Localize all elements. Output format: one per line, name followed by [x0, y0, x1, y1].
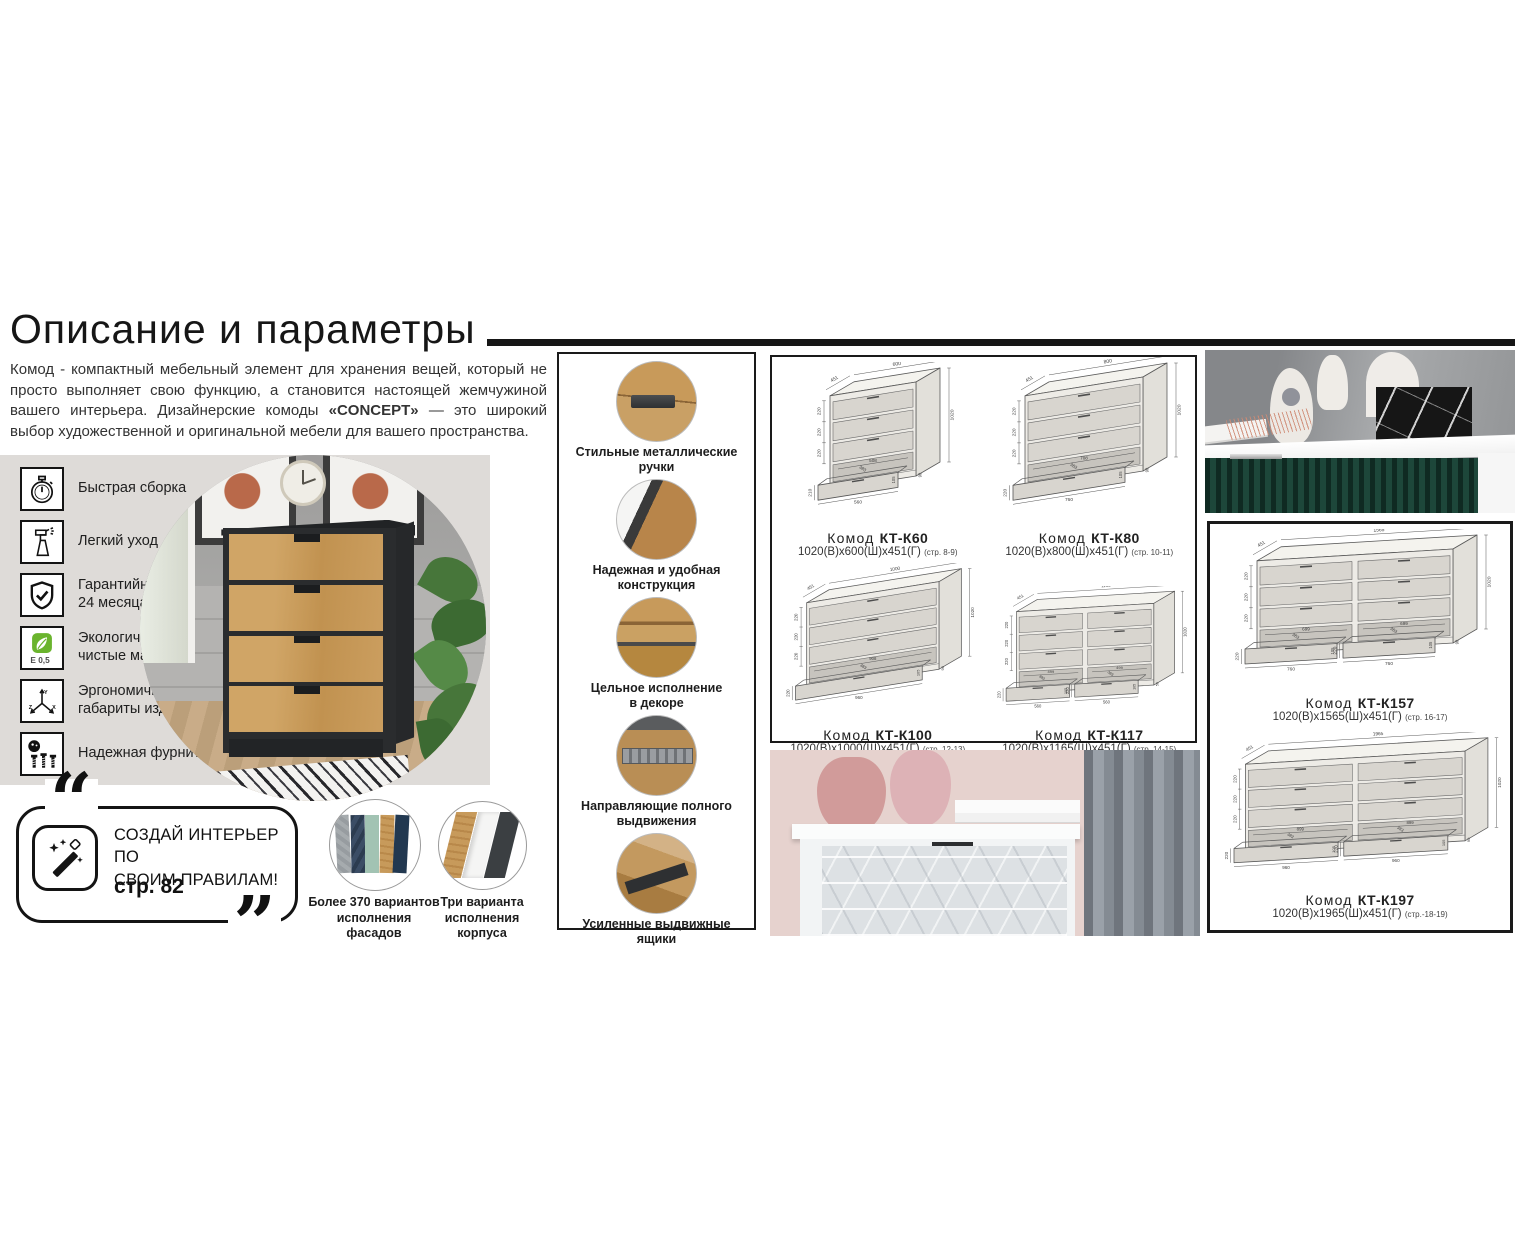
model-cell-кт-к157: 6992207603831056992207603831052202202201…: [1223, 529, 1497, 728]
hex-pattern-front: [822, 846, 1067, 936]
model-type-label: Комод: [1305, 892, 1352, 908]
svg-text:1165: 1165: [1101, 586, 1111, 588]
body-variants-photo: [438, 801, 527, 890]
detail-caption: Усиленные выдвижные ящики: [582, 917, 730, 947]
model-dimensions: 1020(В)x800(Ш)x451(Г) (стр. 10-11): [1005, 546, 1173, 558]
drawer-handle: [1230, 454, 1283, 459]
model-cell-кт-к60: 508210560383105220220220600451102090Комо…: [772, 357, 984, 563]
svg-text:1020: 1020: [1497, 777, 1503, 788]
svg-text:220: 220: [1235, 652, 1241, 660]
models-column: 6992207603831056992207603831052202202201…: [1207, 521, 1513, 933]
model-page-ref: (стр. 16-17): [1405, 713, 1447, 722]
dresser-top: [792, 824, 1080, 839]
svg-text:499: 499: [1116, 664, 1123, 669]
svg-text:220: 220: [1232, 775, 1237, 783]
svg-text:220: 220: [786, 689, 791, 697]
svg-text:220: 220: [1232, 815, 1237, 823]
svg-text:X: X: [52, 705, 56, 711]
detail-item: Направляющие полного выдвижения: [581, 715, 732, 829]
model-caption: Комод КТ-К80: [1039, 530, 1140, 546]
detail-item: Цельное исполнение в декоре: [591, 597, 723, 711]
books: [955, 800, 1080, 813]
svg-text:560: 560: [854, 499, 862, 505]
dresser-drawer: [229, 636, 383, 682]
svg-text:760: 760: [1385, 661, 1393, 667]
model-page-ref: (стр. 10-11): [1131, 548, 1173, 557]
model-diagram: 8992209603831058992209603831052202202201…: [1213, 732, 1507, 894]
svg-text:899: 899: [1406, 820, 1414, 825]
promo-banner[interactable]: “ ” СОЗДАЙ ИНТЕРЬЕР ПО СВОИМ ПРАВИЛАМ! с…: [16, 806, 298, 923]
model-page-ref: (стр.-18-19): [1405, 910, 1448, 919]
model-diagram: 708220760383105220220220800451102090: [991, 357, 1187, 532]
svg-text:Y: Y: [44, 690, 48, 696]
model-cell-кт-к80: 708220760383105220220220800451102090Комо…: [984, 357, 1196, 563]
svg-text:105: 105: [1118, 471, 1123, 479]
svg-text:1020: 1020: [949, 409, 955, 420]
svg-text:908: 908: [870, 656, 878, 661]
svg-text:E 0,5: E 0,5: [30, 656, 50, 665]
svg-text:1020: 1020: [970, 607, 975, 618]
facade-variants-caption: Более 370 вариантов исполнения фасадов: [308, 895, 440, 942]
svg-text:220: 220: [996, 690, 1001, 698]
model-dimensions: 1020(В)x600(Ш)x451(Г) (стр. 8-9): [798, 546, 958, 558]
svg-text:560: 560: [1034, 703, 1042, 708]
svg-text:960: 960: [855, 695, 863, 700]
svg-text:499: 499: [1047, 669, 1054, 674]
model-code: КТ-К80: [1091, 530, 1140, 546]
svg-text:960: 960: [1392, 858, 1400, 863]
clock: [280, 460, 326, 506]
svg-text:50: 50: [1155, 682, 1159, 686]
pink-vase: [817, 757, 886, 830]
svg-text:451: 451: [806, 583, 815, 591]
svg-text:220: 220: [1224, 852, 1229, 860]
detail-photo: [616, 479, 697, 560]
model-type-label: Комод: [1039, 530, 1086, 546]
spray-bottle-icon: [20, 520, 64, 564]
sideboard-front: [1205, 458, 1481, 513]
svg-text:220: 220: [794, 632, 799, 640]
svg-text:220: 220: [816, 407, 822, 415]
model-caption: Комод КТ-К197: [1305, 892, 1414, 908]
svg-text:560: 560: [1103, 699, 1111, 704]
svg-text:220: 220: [1334, 845, 1339, 853]
detail-caption: Стильные металлические ручки: [576, 445, 738, 475]
svg-text:90: 90: [917, 472, 922, 477]
svg-text:90: 90: [1454, 639, 1459, 644]
svg-text:220: 220: [794, 652, 799, 660]
detail-caption: Надежная и удобная конструкция: [593, 563, 721, 593]
svg-text:760: 760: [1287, 666, 1295, 672]
svg-text:508: 508: [869, 458, 877, 463]
pink-vase: [890, 750, 950, 826]
model-caption: Комод КТ-К157: [1305, 695, 1414, 711]
svg-text:1565: 1565: [1373, 529, 1385, 534]
magic-wand-icon: [32, 825, 98, 891]
svg-text:220: 220: [816, 428, 822, 436]
title-rule: [487, 339, 1515, 346]
shield-check-icon: [20, 573, 64, 617]
model-dimensions: 1020(В)x1965(Ш)x451(Г) (стр.-18-19): [1272, 908, 1447, 920]
detail-caption: Цельное исполнение в декоре: [591, 681, 723, 711]
model-diagram: 4992205603831054992205603831052202202201…: [987, 586, 1192, 730]
svg-text:105: 105: [1132, 683, 1136, 689]
svg-text:220: 220: [1012, 449, 1018, 457]
svg-text:220: 220: [1004, 639, 1009, 647]
vase: [1317, 355, 1348, 410]
svg-text:220: 220: [1243, 572, 1249, 580]
svg-text:90: 90: [1145, 467, 1150, 472]
model-diagram: 6992207603831056992207603831052202202201…: [1223, 529, 1497, 697]
svg-text:600: 600: [892, 362, 901, 368]
models-grid: 508210560383105220220220600451102090Комо…: [770, 355, 1197, 743]
details-column: Стильные металлические ручкиНадежная и у…: [557, 352, 756, 930]
svg-text:699: 699: [1302, 626, 1310, 631]
dresser-body: [800, 839, 1075, 936]
interior-photo-2: [770, 750, 1200, 936]
stopwatch-icon: [20, 467, 64, 511]
xyz-axes-icon: YZX: [20, 679, 64, 723]
model-page-ref: (стр. 8-9): [924, 548, 957, 557]
svg-text:220: 220: [794, 613, 799, 621]
svg-text:105: 105: [1441, 839, 1446, 846]
model-type-label: Комод: [1305, 695, 1352, 711]
model-type-label: Комод: [823, 727, 870, 743]
model-code: КТ-К117: [1087, 727, 1143, 743]
model-code: КТ-К157: [1358, 695, 1415, 711]
model-type-label: Комод: [1035, 727, 1082, 743]
model-cell-кт-к197: 8992209603831058992209603831052202202201…: [1213, 732, 1507, 925]
svg-text:1020: 1020: [1182, 626, 1187, 636]
detail-photo: [616, 715, 697, 796]
svg-text:220: 220: [816, 449, 822, 457]
model-caption: Комод КТ-К100: [823, 727, 932, 743]
svg-text:220: 220: [1243, 593, 1249, 601]
model-cell-кт-к100: 9082209603831052202202201000451102090Ком…: [772, 563, 984, 761]
detail-item: Надежная и удобная конструкция: [593, 479, 721, 593]
svg-text:1020: 1020: [1486, 576, 1492, 587]
facade-variants-photo: [329, 799, 421, 891]
svg-text:220: 220: [1232, 795, 1237, 803]
dresser-drawer: [229, 585, 383, 631]
svg-text:220: 220: [1004, 657, 1009, 665]
photo-window: [140, 490, 195, 663]
svg-text:220: 220: [1333, 646, 1339, 654]
curtain: [1084, 750, 1200, 936]
photo-dresser: [223, 528, 396, 753]
detail-item: Стильные металлические ручки: [576, 361, 738, 475]
catalog-page: Описание и параметры Комод - компактный …: [0, 0, 1515, 1240]
interior-photo-1: [1205, 350, 1515, 513]
svg-text:90: 90: [1466, 837, 1471, 842]
svg-text:220: 220: [1004, 621, 1009, 629]
promo-page-ref[interactable]: стр. 82: [114, 875, 184, 899]
detail-photo: [616, 833, 697, 914]
eco-leaf-icon: E 0,5: [20, 626, 64, 670]
model-diagram: 9082209603831052202202201000451102090: [775, 563, 980, 730]
dresser-drawer: [229, 534, 383, 580]
quote-close-icon: ”: [228, 902, 281, 946]
svg-text:960: 960: [1282, 865, 1290, 870]
model-dimensions: 1020(В)x1565(Ш)x451(Г) (стр. 16-17): [1273, 711, 1448, 723]
hero-photo: [140, 455, 486, 801]
detail-photo: [616, 361, 697, 442]
svg-text:760: 760: [1065, 497, 1073, 503]
model-diagram: 508210560383105220220220600451102090: [796, 362, 960, 532]
model-code: КТ-К197: [1358, 892, 1415, 908]
model-caption: Комод КТ-К117: [1035, 727, 1143, 743]
svg-text:220: 220: [1243, 614, 1249, 622]
brand-name: «CONCEPT»: [329, 402, 419, 419]
page-title: Описание и параметры: [10, 306, 476, 353]
svg-text:451: 451: [1016, 592, 1025, 600]
svg-text:899: 899: [1297, 827, 1305, 832]
svg-text:699: 699: [1400, 621, 1408, 626]
dresser-drawer: [229, 686, 383, 732]
intro-paragraph: Комод - компактный мебельный элемент для…: [10, 360, 547, 442]
svg-text:220: 220: [1065, 686, 1070, 694]
model-code: КТ-К100: [876, 727, 933, 743]
svg-text:220: 220: [1012, 428, 1018, 436]
svg-text:220: 220: [1003, 488, 1009, 496]
model-code: КТ-К60: [880, 530, 929, 546]
svg-text:105: 105: [916, 669, 921, 676]
svg-text:1020: 1020: [1177, 404, 1183, 415]
svg-text:105: 105: [1428, 641, 1433, 649]
svg-text:1000: 1000: [890, 565, 901, 572]
model-cell-кт-к117: 4992205603831054992205603831052202202201…: [984, 563, 1196, 761]
detail-item: Усиленные выдвижные ящики: [582, 833, 730, 947]
detail-caption: Направляющие полного выдвижения: [581, 799, 732, 829]
model-caption: Комод КТ-К60: [827, 530, 928, 546]
svg-text:800: 800: [1104, 358, 1113, 365]
detail-photo: [616, 597, 697, 678]
svg-text:210: 210: [807, 488, 813, 496]
svg-text:105: 105: [891, 476, 896, 484]
svg-text:220: 220: [1012, 407, 1018, 415]
svg-text:1965: 1965: [1373, 732, 1384, 738]
drawer-handle: [932, 842, 973, 846]
model-type-label: Комод: [827, 530, 874, 546]
body-variants-caption: Три варианта исполнения корпуса: [426, 895, 538, 942]
quote-open-icon: “: [45, 779, 98, 823]
svg-text:451: 451: [1245, 744, 1255, 752]
svg-text:708: 708: [1080, 455, 1088, 460]
